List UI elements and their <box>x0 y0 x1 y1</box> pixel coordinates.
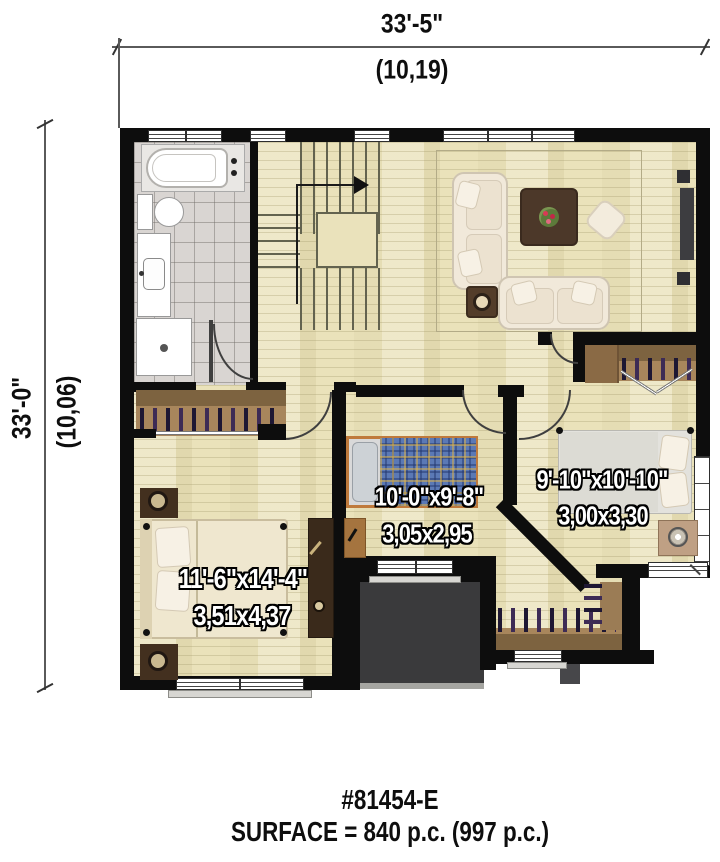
bed-post <box>143 523 150 530</box>
staircase-side-rails <box>258 214 300 268</box>
window-sill-closet <box>507 662 567 669</box>
bedroom2-size-metric: 3,05x2,95 <box>382 519 472 550</box>
plan-number: #81454-E <box>341 784 438 816</box>
window-mullion <box>185 131 187 141</box>
table-lamp-icon <box>148 651 168 671</box>
speaker-icon <box>677 170 690 183</box>
bedroom3-size-imperial: 9'-10"x10'-10" <box>536 465 667 496</box>
master-closet-sliding-door <box>156 431 258 435</box>
toilet-bowl <box>154 197 184 227</box>
wall-living-bottom <box>578 332 696 345</box>
closet-hangers-right <box>584 584 602 628</box>
stair-direction-line-h <box>296 184 354 186</box>
window-bedroom2 <box>377 560 453 574</box>
window-sill-bedroom2 <box>369 576 461 583</box>
table-lamp-icon <box>148 491 168 511</box>
top-dimension-metric: (10,19) <box>376 55 449 86</box>
shower-drain-icon <box>160 344 168 352</box>
wall-roof-left <box>346 582 360 690</box>
window-mullion <box>415 561 417 573</box>
wall-closet-right <box>622 578 640 664</box>
window-sill-master <box>168 690 312 698</box>
bed-pillow <box>155 526 192 568</box>
master-bed-headboard <box>140 519 152 639</box>
left-dimension-imperial: 33'-0" <box>7 377 38 439</box>
surface-area: SURFACE = 840 p.c. (997 p.c.) <box>231 816 549 848</box>
bathtub-faucet-icon <box>231 158 237 164</box>
bed-post <box>280 523 287 530</box>
master-bedroom-size-imperial: 11'-6"x14'-4" <box>179 563 308 595</box>
dresser <box>308 518 334 638</box>
window-mullion <box>239 679 241 689</box>
bedroom3-size-metric: 3,00x3,30 <box>558 501 648 532</box>
bedroom2-size-imperial: 10'-0"x9'-8" <box>375 482 483 513</box>
window-diagonal-mark <box>690 564 701 575</box>
floor-plan-page: 33'-5" (10,19) 33'-0" (10,06) <box>0 0 720 862</box>
sink <box>143 258 165 290</box>
dresser-dish <box>313 600 325 612</box>
master-closet-post-right <box>258 424 286 440</box>
sink-faucet-icon <box>139 271 144 276</box>
bathtub-drain-icon <box>231 170 237 176</box>
flower-centerpiece <box>539 207 559 227</box>
window-master-bedroom <box>176 678 304 690</box>
throw-pillow <box>570 280 598 307</box>
toilet-tank <box>137 194 153 230</box>
bed-post <box>143 629 150 636</box>
stair-direction-line-v <box>296 184 298 304</box>
wall-exterior-left <box>120 128 134 690</box>
master-closet-post-left <box>134 429 156 438</box>
lower-roof-edge <box>350 683 484 689</box>
table-lamp-icon <box>473 293 491 311</box>
lower-roof-area <box>350 582 484 683</box>
window-hall-top <box>354 130 390 142</box>
window-bedroom3-bottom <box>648 562 708 578</box>
table-lamp-icon <box>668 527 688 547</box>
master-bedroom-size-metric: 3,51x4,37 <box>193 600 290 632</box>
top-dimension-imperial: 33'-5" <box>381 9 443 40</box>
staircase-landing <box>316 212 378 268</box>
speaker-icon <box>677 272 690 285</box>
window-mullion <box>531 131 533 141</box>
window-living-room <box>443 130 575 142</box>
window-mullion <box>487 131 489 141</box>
closet-shelf-right <box>600 582 622 630</box>
window-stair <box>250 130 286 142</box>
window-bathroom <box>148 130 222 142</box>
top-dimension-line <box>112 46 710 48</box>
bathtub-inner <box>152 154 216 182</box>
left-dimension-metric: (10,06) <box>52 376 83 449</box>
tv <box>680 188 694 260</box>
stair-direction-arrow-icon <box>354 176 369 194</box>
window-closet <box>514 650 562 662</box>
nook-cabinet <box>585 345 619 383</box>
flower-blossoms <box>543 211 548 216</box>
bed-post <box>687 427 694 434</box>
staircase-lower-treads <box>300 268 380 330</box>
top-extension-line <box>118 38 120 128</box>
left-dimension-line <box>44 120 46 690</box>
bed-post <box>556 427 563 434</box>
wall-bedroom2-top <box>356 385 464 397</box>
